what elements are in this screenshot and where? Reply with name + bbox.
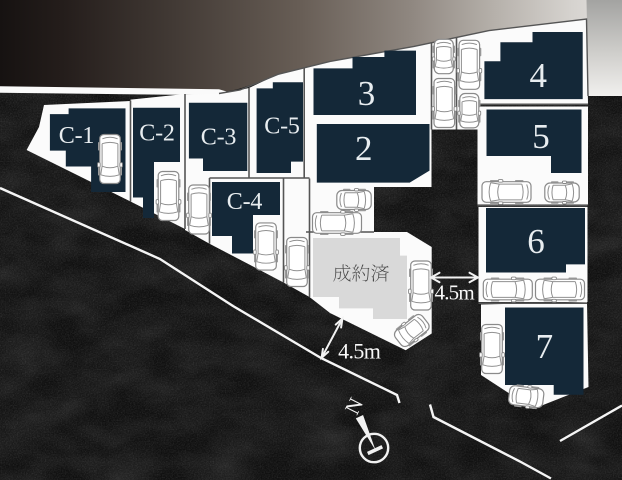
svg-text:7: 7 [536,327,554,366]
svg-text:4.5m: 4.5m [435,281,475,305]
svg-text:C-5: C-5 [264,114,300,140]
svg-text:4.5m: 4.5m [338,339,381,364]
svg-text:4: 4 [530,56,548,95]
svg-text:C-4: C-4 [227,189,263,215]
svg-text:C-3: C-3 [201,125,237,151]
svg-text:2: 2 [355,129,373,168]
svg-text:C-2: C-2 [139,121,174,147]
svg-text:C-1: C-1 [59,123,94,149]
svg-text:3: 3 [358,74,376,113]
svg-text:6: 6 [527,222,545,261]
svg-text:5: 5 [532,117,550,156]
